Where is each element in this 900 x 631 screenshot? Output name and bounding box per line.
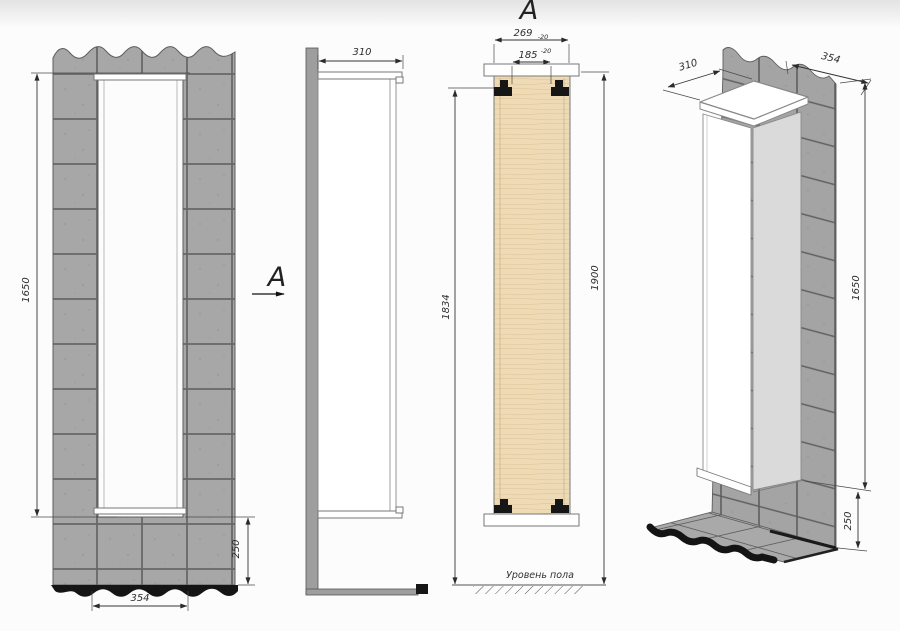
floor-hatch bbox=[473, 586, 583, 594]
floor-end-block bbox=[416, 584, 428, 594]
floor-section bbox=[306, 589, 418, 595]
iso-dim-floor-gap-value: 250 bbox=[843, 511, 854, 530]
side-dim-depth-value: 310 bbox=[352, 47, 371, 58]
niche-top-trim bbox=[94, 74, 186, 80]
niche-bottom-trim bbox=[94, 508, 186, 514]
cabinet-bottom-cap bbox=[318, 511, 402, 518]
section-dim-inner-value: 185 bbox=[518, 50, 537, 61]
back-panel bbox=[494, 76, 570, 514]
technical-drawing-canvas: 1650 250 354 bbox=[0, 0, 900, 631]
view-direction-label: A bbox=[266, 262, 286, 293]
cabinet-side-profile bbox=[318, 72, 403, 518]
iso-column-front-face bbox=[703, 114, 751, 489]
wall-section bbox=[306, 48, 318, 594]
section-dim-outer-tolerance: -20 bbox=[538, 33, 549, 41]
section-top-trim bbox=[484, 64, 579, 76]
drawing-page: 1650 250 354 bbox=[0, 0, 900, 631]
section-dim-outer-value: 269 bbox=[513, 28, 532, 39]
top-shade-band bbox=[0, 0, 900, 28]
front-dim-plinth-value: 250 bbox=[231, 539, 242, 558]
section-label: A bbox=[518, 0, 538, 26]
section-dim-inner-tolerance: -20 bbox=[541, 47, 552, 55]
cabinet-top-cap-nose bbox=[396, 77, 403, 83]
iso-column-side-face bbox=[753, 112, 801, 490]
floor-level-label: Уровень пола bbox=[506, 570, 574, 581]
section-dim-bracket-height-value: 1834 bbox=[441, 294, 452, 319]
section-dim-overall-height-value: 1900 bbox=[590, 265, 601, 290]
cabinet-top-cap bbox=[318, 72, 402, 79]
front-dim-width-value: 354 bbox=[130, 593, 149, 604]
cabinet-body bbox=[318, 79, 396, 512]
iso-dim-height-value: 1650 bbox=[851, 275, 862, 300]
front-dim-height-value: 1650 bbox=[21, 277, 32, 302]
section-bottom-trim bbox=[484, 514, 579, 526]
cabinet-bottom-cap-nose bbox=[396, 507, 403, 513]
